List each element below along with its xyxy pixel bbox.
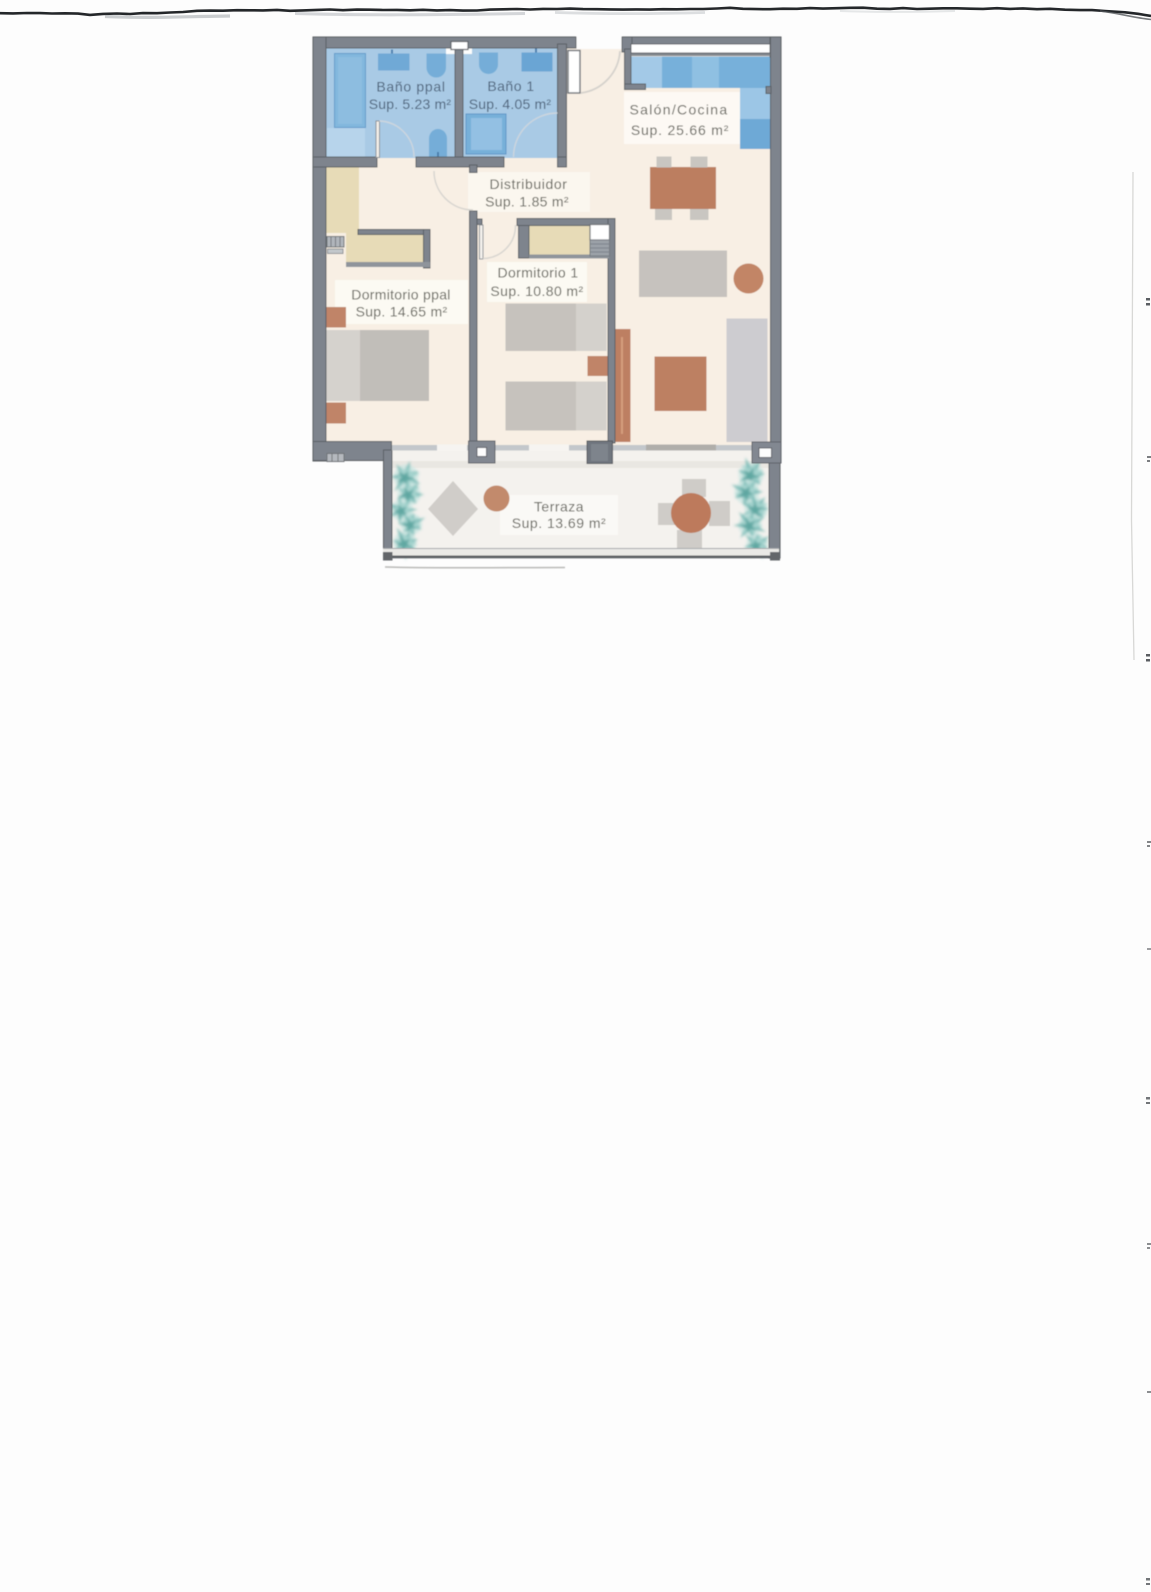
svg-text:Terraza: Terraza: [534, 499, 584, 515]
svg-text:Baño ppal: Baño ppal: [376, 79, 445, 95]
svg-text:Sup. 10.80 m²: Sup. 10.80 m²: [490, 283, 583, 299]
svg-text:Sup. 14.65 m²: Sup. 14.65 m²: [356, 304, 448, 320]
svg-text:Sup. 13.69 m²: Sup. 13.69 m²: [512, 515, 606, 531]
svg-text:Dormitorio 1: Dormitorio 1: [497, 265, 578, 281]
svg-text:Dormitorio ppal: Dormitorio ppal: [351, 287, 450, 303]
svg-text:Sup. 4.05 m²: Sup. 4.05 m²: [469, 96, 552, 112]
svg-text:Salón/Cocina: Salón/Cocina: [630, 102, 729, 118]
svg-text:Sup. 5.23 m²: Sup. 5.23 m²: [369, 96, 452, 112]
svg-text:Distribuidor: Distribuidor: [490, 176, 568, 192]
svg-text:Baño 1: Baño 1: [487, 78, 534, 94]
svg-text:Sup. 25.66 m²: Sup. 25.66 m²: [631, 122, 729, 138]
svg-text:Sup. 1.85 m²: Sup. 1.85 m²: [485, 194, 569, 210]
